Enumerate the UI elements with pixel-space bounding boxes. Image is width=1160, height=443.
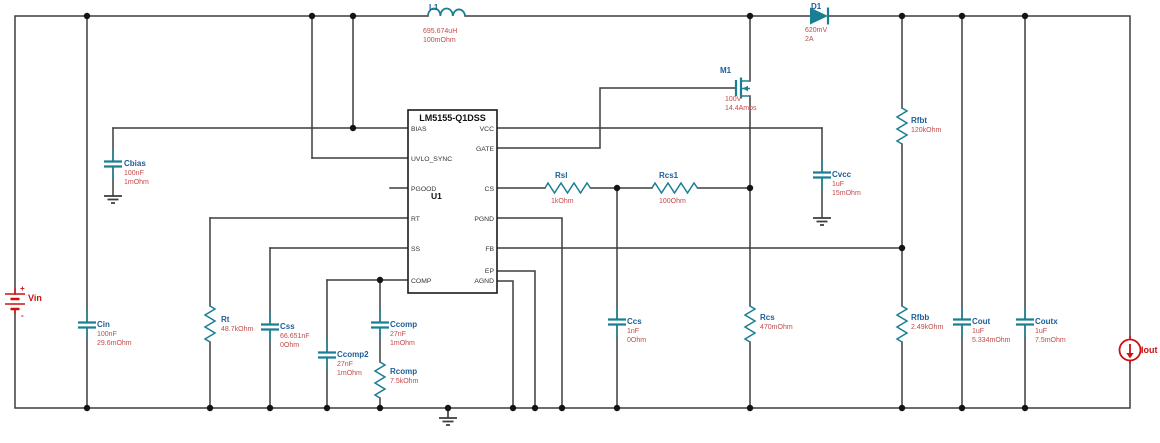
junction-dot (324, 405, 330, 411)
component-value: 100nF (97, 331, 117, 338)
pin-label-vcc: VCC (480, 126, 494, 133)
ground-icon (104, 196, 122, 203)
component-value: 29.6mOhm (97, 340, 132, 347)
component-value: 27nF (390, 331, 406, 338)
resistor-Rsl: Rsl 1kOhm (545, 171, 591, 205)
pin-label-cs: CS (485, 186, 495, 193)
junction-dot (350, 13, 356, 19)
capacitor-Ccomp: Ccomp 27nF 1mOhm (390, 320, 417, 347)
component-label: L1 (429, 3, 439, 12)
component-value: 14.4Amps (725, 105, 757, 112)
mosfet-M1: M1 100V 14.4Amps (720, 66, 757, 112)
component-label: Rt (221, 315, 230, 324)
component-value: 7.5mOhm (1035, 337, 1066, 344)
junction-dot (267, 405, 273, 411)
diode-D1: D1 620mV 2A (805, 2, 828, 43)
right-branches (617, 16, 1025, 408)
capacitor-Ccomp2: Ccomp2 27nF 1mOhm (337, 350, 369, 377)
junction-dot (510, 405, 516, 411)
resistor-Rt: Rt 48.7kOhm (205, 306, 253, 342)
component-value: 0Ohm (627, 337, 646, 344)
schematic-canvas: LM5155-Q1DSS U1 BIAS UVLO_SYNC PGOOD RT … (0, 0, 1160, 438)
voltage-source-Vin: + - Vin (5, 284, 42, 320)
component-label: Ccomp (390, 320, 417, 329)
capacitor-Cbias: Cbias 100nF 1mOhm (124, 159, 149, 186)
resistor-icon (375, 362, 385, 398)
junction-dot (377, 405, 383, 411)
schematic-page: LM5155-Q1DSS U1 BIAS UVLO_SYNC PGOOD RT … (0, 0, 1160, 438)
component-label: Cin (97, 320, 110, 329)
junction-dot (377, 277, 383, 283)
component-label: Rsl (555, 171, 567, 180)
junction-dot (84, 13, 90, 19)
pin-label-uvlo-sync: UVLO_SYNC (411, 156, 452, 163)
junction-dot (614, 405, 620, 411)
component-label: Ccomp2 (337, 350, 369, 359)
junction-dot (959, 405, 965, 411)
component-label: Cbias (124, 159, 146, 168)
junction-dot (959, 13, 965, 19)
component-value: 1uF (832, 181, 844, 188)
component-value: 100Ohm (659, 198, 686, 205)
junction-dot (747, 185, 753, 191)
ic-left-pin-wires (113, 128, 408, 280)
pin-label-bias: BIAS (411, 126, 427, 133)
component-value: 48.7kOhm (221, 326, 253, 333)
pin-label-gate: GATE (476, 146, 494, 153)
junction-dot (747, 13, 753, 19)
component-value: 1mOhm (390, 340, 415, 347)
component-value: 27nF (337, 361, 353, 368)
pin-label-fb: FB (485, 246, 494, 253)
component-label: Iout (1141, 345, 1158, 355)
ic-title: LM5155-Q1DSS (419, 113, 486, 123)
component-value: 695.674uH (423, 28, 457, 35)
component-value: 1uF (972, 328, 984, 335)
pin-label-comp: COMP (411, 278, 432, 285)
component-label: Rcomp (390, 367, 417, 376)
junction-dot (445, 405, 451, 411)
resistor-icon (205, 306, 215, 342)
component-value: 1mOhm (124, 179, 149, 186)
resistor-Rcomp: Rcomp 7.5kOhm (375, 362, 419, 398)
junction-dot (350, 125, 356, 131)
component-label: Cvcc (832, 170, 852, 179)
component-value: 100nF (124, 170, 144, 177)
ground-icon (813, 218, 831, 225)
capacitor-Coutx: Coutx 1uF 7.5mOhm (1035, 317, 1066, 344)
mosfet-arrow (743, 86, 749, 91)
junction-dots (84, 13, 1028, 411)
pin-label-pgood: PGOOD (411, 186, 436, 193)
plus-sign: + (20, 284, 25, 293)
resistor-icon (545, 183, 591, 193)
resistor-Rfbb: Rfbb 2.49kOhm (897, 306, 943, 342)
component-value: 2A (805, 36, 814, 43)
junction-dot (899, 245, 905, 251)
pin-label-ss: SS (411, 246, 421, 253)
junction-dot (747, 405, 753, 411)
capacitor-Cout: Cout 1uF 5.334mOhm (972, 317, 1011, 344)
ic-body (408, 110, 497, 293)
pin-label-pgnd: PGND (474, 216, 494, 223)
ic-right-pin-wires (497, 88, 902, 408)
component-label: D1 (811, 2, 822, 11)
junction-dot (207, 405, 213, 411)
resistor-icon (897, 108, 907, 144)
junction-dot (309, 13, 315, 19)
junction-dot (84, 405, 90, 411)
component-value: 1nF (627, 328, 639, 335)
pin-label-agnd: AGND (474, 278, 494, 285)
junction-dot (899, 405, 905, 411)
component-value: 120kOhm (911, 127, 942, 134)
junction-dot (532, 405, 538, 411)
component-label: Css (280, 322, 295, 331)
component-value: 66.651nF (280, 333, 310, 340)
pin-label-rt: RT (411, 216, 420, 223)
component-value: 1mOhm (337, 370, 362, 377)
component-value: 1uF (1035, 328, 1047, 335)
component-label: Ccs (627, 317, 642, 326)
component-value: 100mOhm (423, 37, 456, 44)
capacitor-Ccs: Ccs 1nF 0Ohm (627, 317, 646, 344)
capacitor-Css: Css 66.651nF 0Ohm (280, 322, 310, 349)
component-label: Rfbb (911, 313, 929, 322)
resistor-Rcs: Rcs 470mOhm (745, 306, 793, 342)
junction-dot (899, 13, 905, 19)
minus-sign: - (21, 311, 24, 320)
wire-net (15, 16, 1130, 408)
capacitor-leads (87, 149, 1025, 370)
junction-dot (1022, 13, 1028, 19)
junction-dot (614, 185, 620, 191)
current-source-Iout: Iout (1120, 336, 1158, 364)
component-label: Rfbt (911, 116, 927, 125)
junction-dot (559, 405, 565, 411)
component-label: Rcs1 (659, 171, 679, 180)
component-value: 15mOhm (832, 190, 861, 197)
component-label: M1 (720, 66, 732, 75)
component-value: 5.334mOhm (972, 337, 1011, 344)
resistor-Rcs1: Rcs1 100Ohm (652, 171, 698, 205)
junction-dot (1022, 405, 1028, 411)
capacitor-Cvcc: Cvcc 1uF 15mOhm (832, 170, 861, 197)
component-label: Rcs (760, 313, 775, 322)
component-label: Vin (28, 293, 42, 303)
component-value: 2.49kOhm (911, 324, 943, 331)
resistor-icon (652, 183, 698, 193)
component-label: Cout (972, 317, 991, 326)
resistor-Rfbt: Rfbt 120kOhm (897, 108, 942, 144)
capacitor-Cin: Cin 100nF 29.6mOhm (97, 320, 132, 347)
capacitor-plates (78, 149, 1034, 370)
component-value: 0Ohm (280, 342, 299, 349)
component-value: 620mV (805, 27, 828, 34)
resistor-icon (745, 306, 755, 342)
component-label: Coutx (1035, 317, 1058, 326)
pin-label-ep: EP (485, 268, 495, 275)
inductor-L1: L1 695.674uH 100mOhm (423, 3, 465, 44)
resistor-icon (897, 306, 907, 342)
ic-u1: LM5155-Q1DSS U1 BIAS UVLO_SYNC PGOOD RT … (408, 110, 497, 293)
component-value: 470mOhm (760, 324, 793, 331)
component-value: 7.5kOhm (390, 378, 419, 385)
component-value: 100V (725, 96, 742, 103)
component-value: 1kOhm (551, 198, 574, 205)
